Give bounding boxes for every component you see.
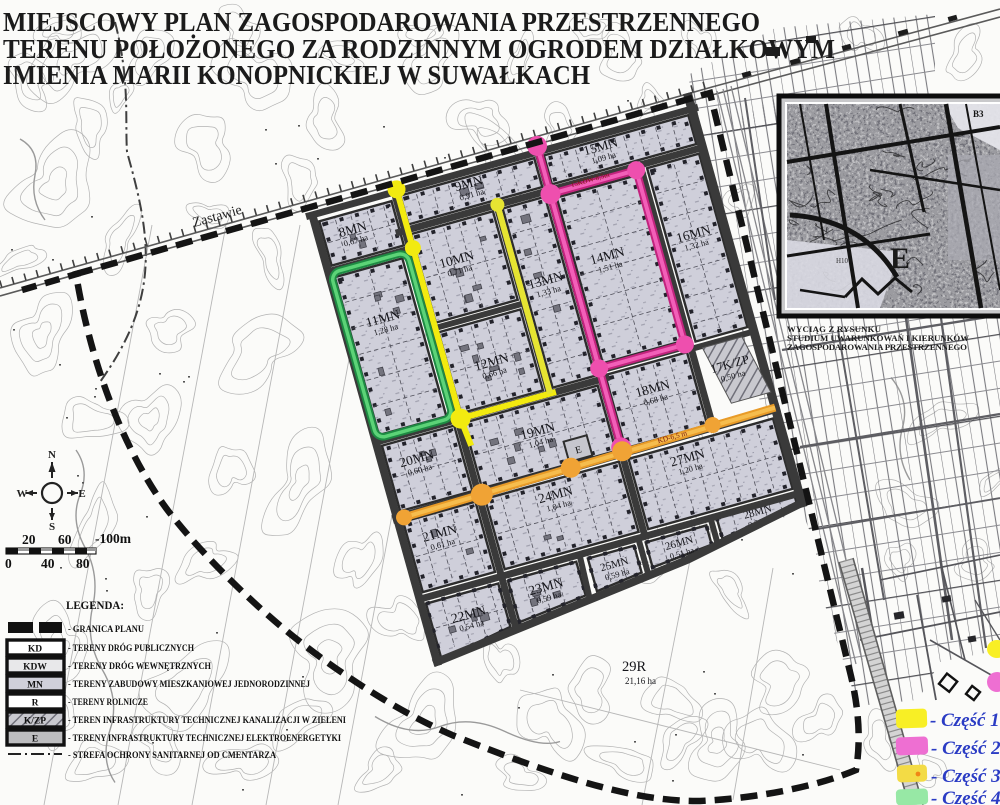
- svg-text:KD: KD: [28, 645, 42, 655]
- svg-text:B3: B3: [973, 109, 984, 119]
- svg-text:- TERENY DRÓG PUBLICZNYCH: - TERENY DRÓG PUBLICZNYCH: [68, 642, 194, 654]
- svg-text:- Część 3: - Część 3: [931, 766, 1000, 787]
- svg-text:40: 40: [41, 556, 55, 571]
- svg-text:-100m: -100m: [95, 531, 132, 546]
- svg-text:S: S: [49, 521, 55, 533]
- svg-text:MN: MN: [27, 681, 43, 691]
- svg-text:- TERENY ROLNICZE: - TERENY ROLNICZE: [68, 697, 148, 708]
- svg-text:20: 20: [22, 532, 36, 547]
- svg-text:E: E: [890, 242, 910, 275]
- svg-text:K/ZP: K/ZP: [24, 717, 46, 727]
- svg-text:ZAGOSPODAROWANIA PRZESTRZENNEG: ZAGOSPODAROWANIA PRZESTRZENNEGO: [787, 342, 967, 352]
- svg-text:LEGENDA:: LEGENDA:: [66, 598, 124, 612]
- svg-text:29R: 29R: [622, 659, 647, 675]
- svg-text:IMIENIA MARII KONOPNICKIEJ W S: IMIENIA MARII KONOPNICKIEJ W SUWAŁKACH: [3, 59, 590, 90]
- svg-text:- TERENY ZABUDOWY MIESZKANIOWE: - TERENY ZABUDOWY MIESZKANIOWEJ JEDNOROD…: [68, 679, 310, 690]
- svg-text:- GRANICA PLANU: - GRANICA PLANU: [68, 624, 144, 635]
- svg-text:N: N: [48, 449, 56, 461]
- svg-text:E: E: [32, 735, 38, 745]
- svg-text:KDW: KDW: [23, 663, 47, 673]
- svg-text:R: R: [32, 699, 39, 709]
- svg-text:- TEREN INFRASTRUKTURY TECHNIC: - TEREN INFRASTRUKTURY TECHNICZNEJ KANAL…: [68, 715, 346, 726]
- svg-text:- TERENY DRÓG WEWNĘTRZNYCH: - TERENY DRÓG WEWNĘTRZNYCH: [68, 660, 211, 672]
- svg-text:- Część 4: - Część 4: [931, 788, 1000, 805]
- svg-text:H10: H10: [836, 257, 849, 265]
- svg-text:- TERENY INFRASTRUKTURY TECHNI: - TERENY INFRASTRUKTURY TECHNICZNEJ ELEK…: [68, 733, 341, 744]
- svg-text:- Część 1: - Część 1: [930, 710, 1000, 731]
- svg-text:- Część 2: - Część 2: [931, 738, 1000, 759]
- svg-text:0: 0: [5, 556, 12, 571]
- svg-text:- STREFA OCHRONY SANITARNEJ OD: - STREFA OCHRONY SANITARNEJ OD CMENTARZA: [68, 750, 276, 761]
- svg-text:60: 60: [58, 532, 72, 547]
- svg-text:80: 80: [76, 556, 90, 571]
- svg-text:E: E: [78, 488, 85, 500]
- svg-text:W: W: [17, 488, 28, 500]
- svg-text:21,16 ha: 21,16 ha: [625, 676, 656, 686]
